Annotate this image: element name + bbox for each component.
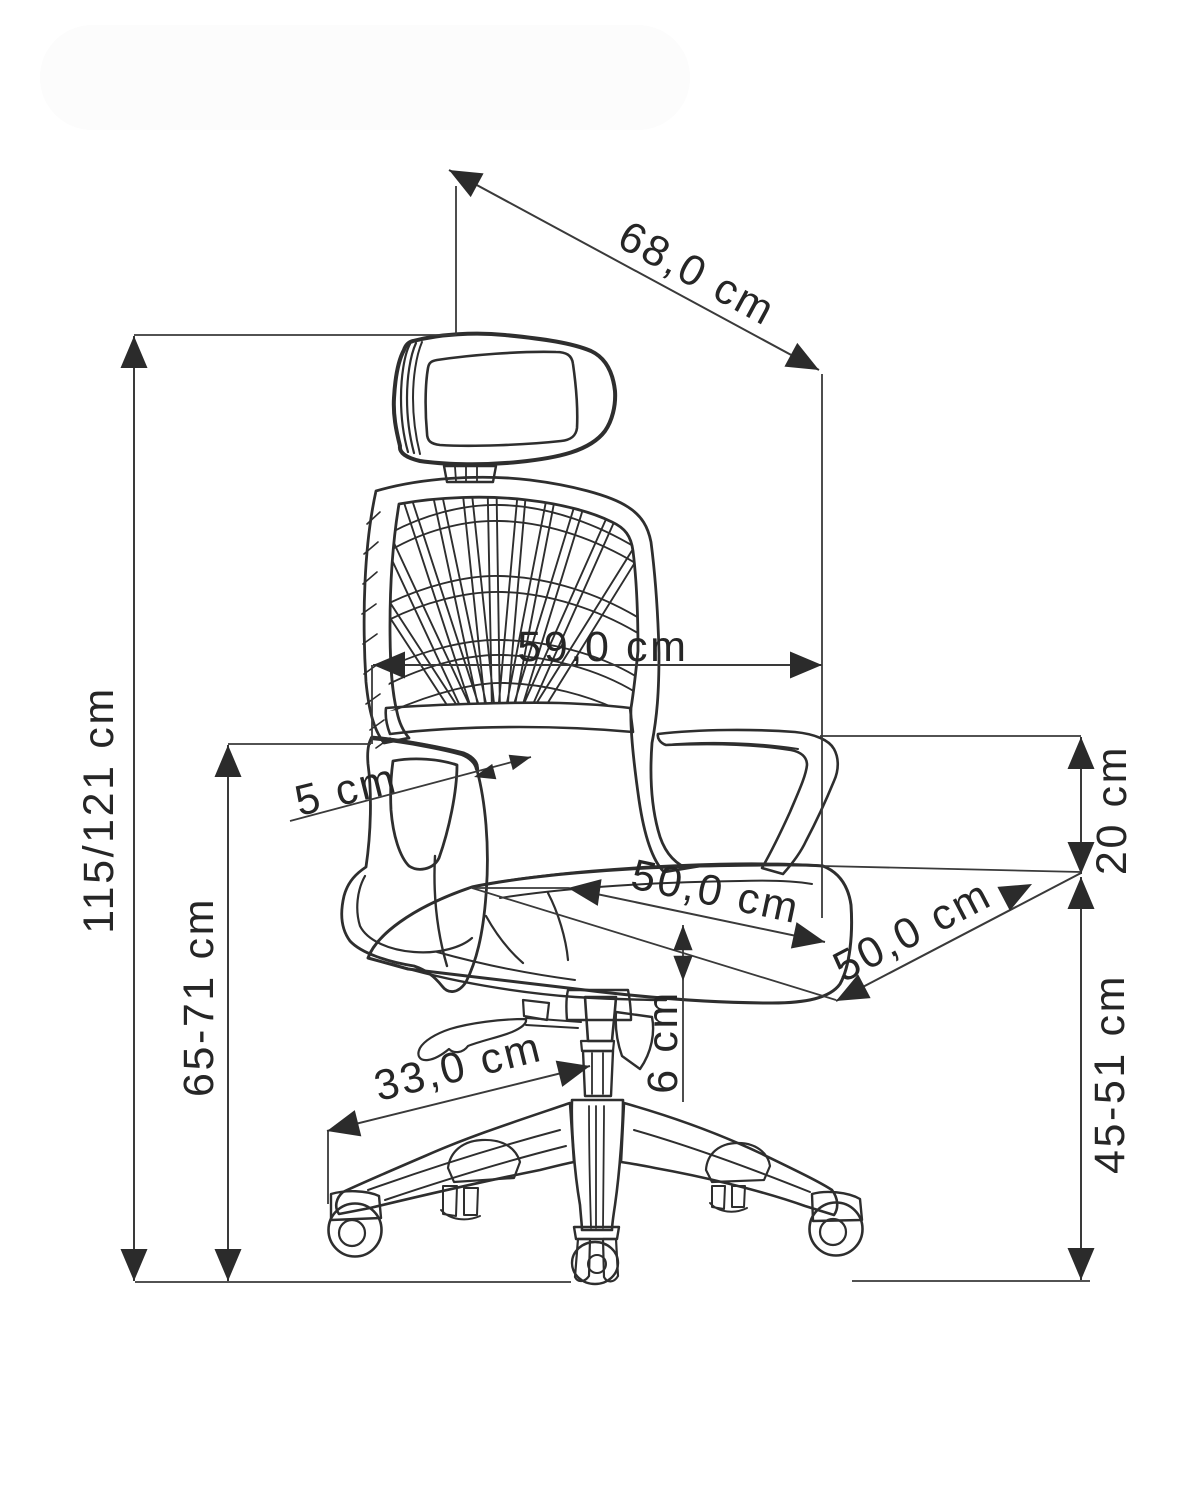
svg-text:20 cm: 20 cm [1088,745,1136,875]
svg-text:65-71 cm: 65-71 cm [175,897,223,1097]
svg-text:6 cm: 6 cm [639,990,687,1094]
svg-text:45-51 cm: 45-51 cm [1086,974,1134,1174]
svg-text:115/121 cm: 115/121 cm [75,686,123,934]
svg-text:59,0 cm: 59,0 cm [517,623,688,671]
